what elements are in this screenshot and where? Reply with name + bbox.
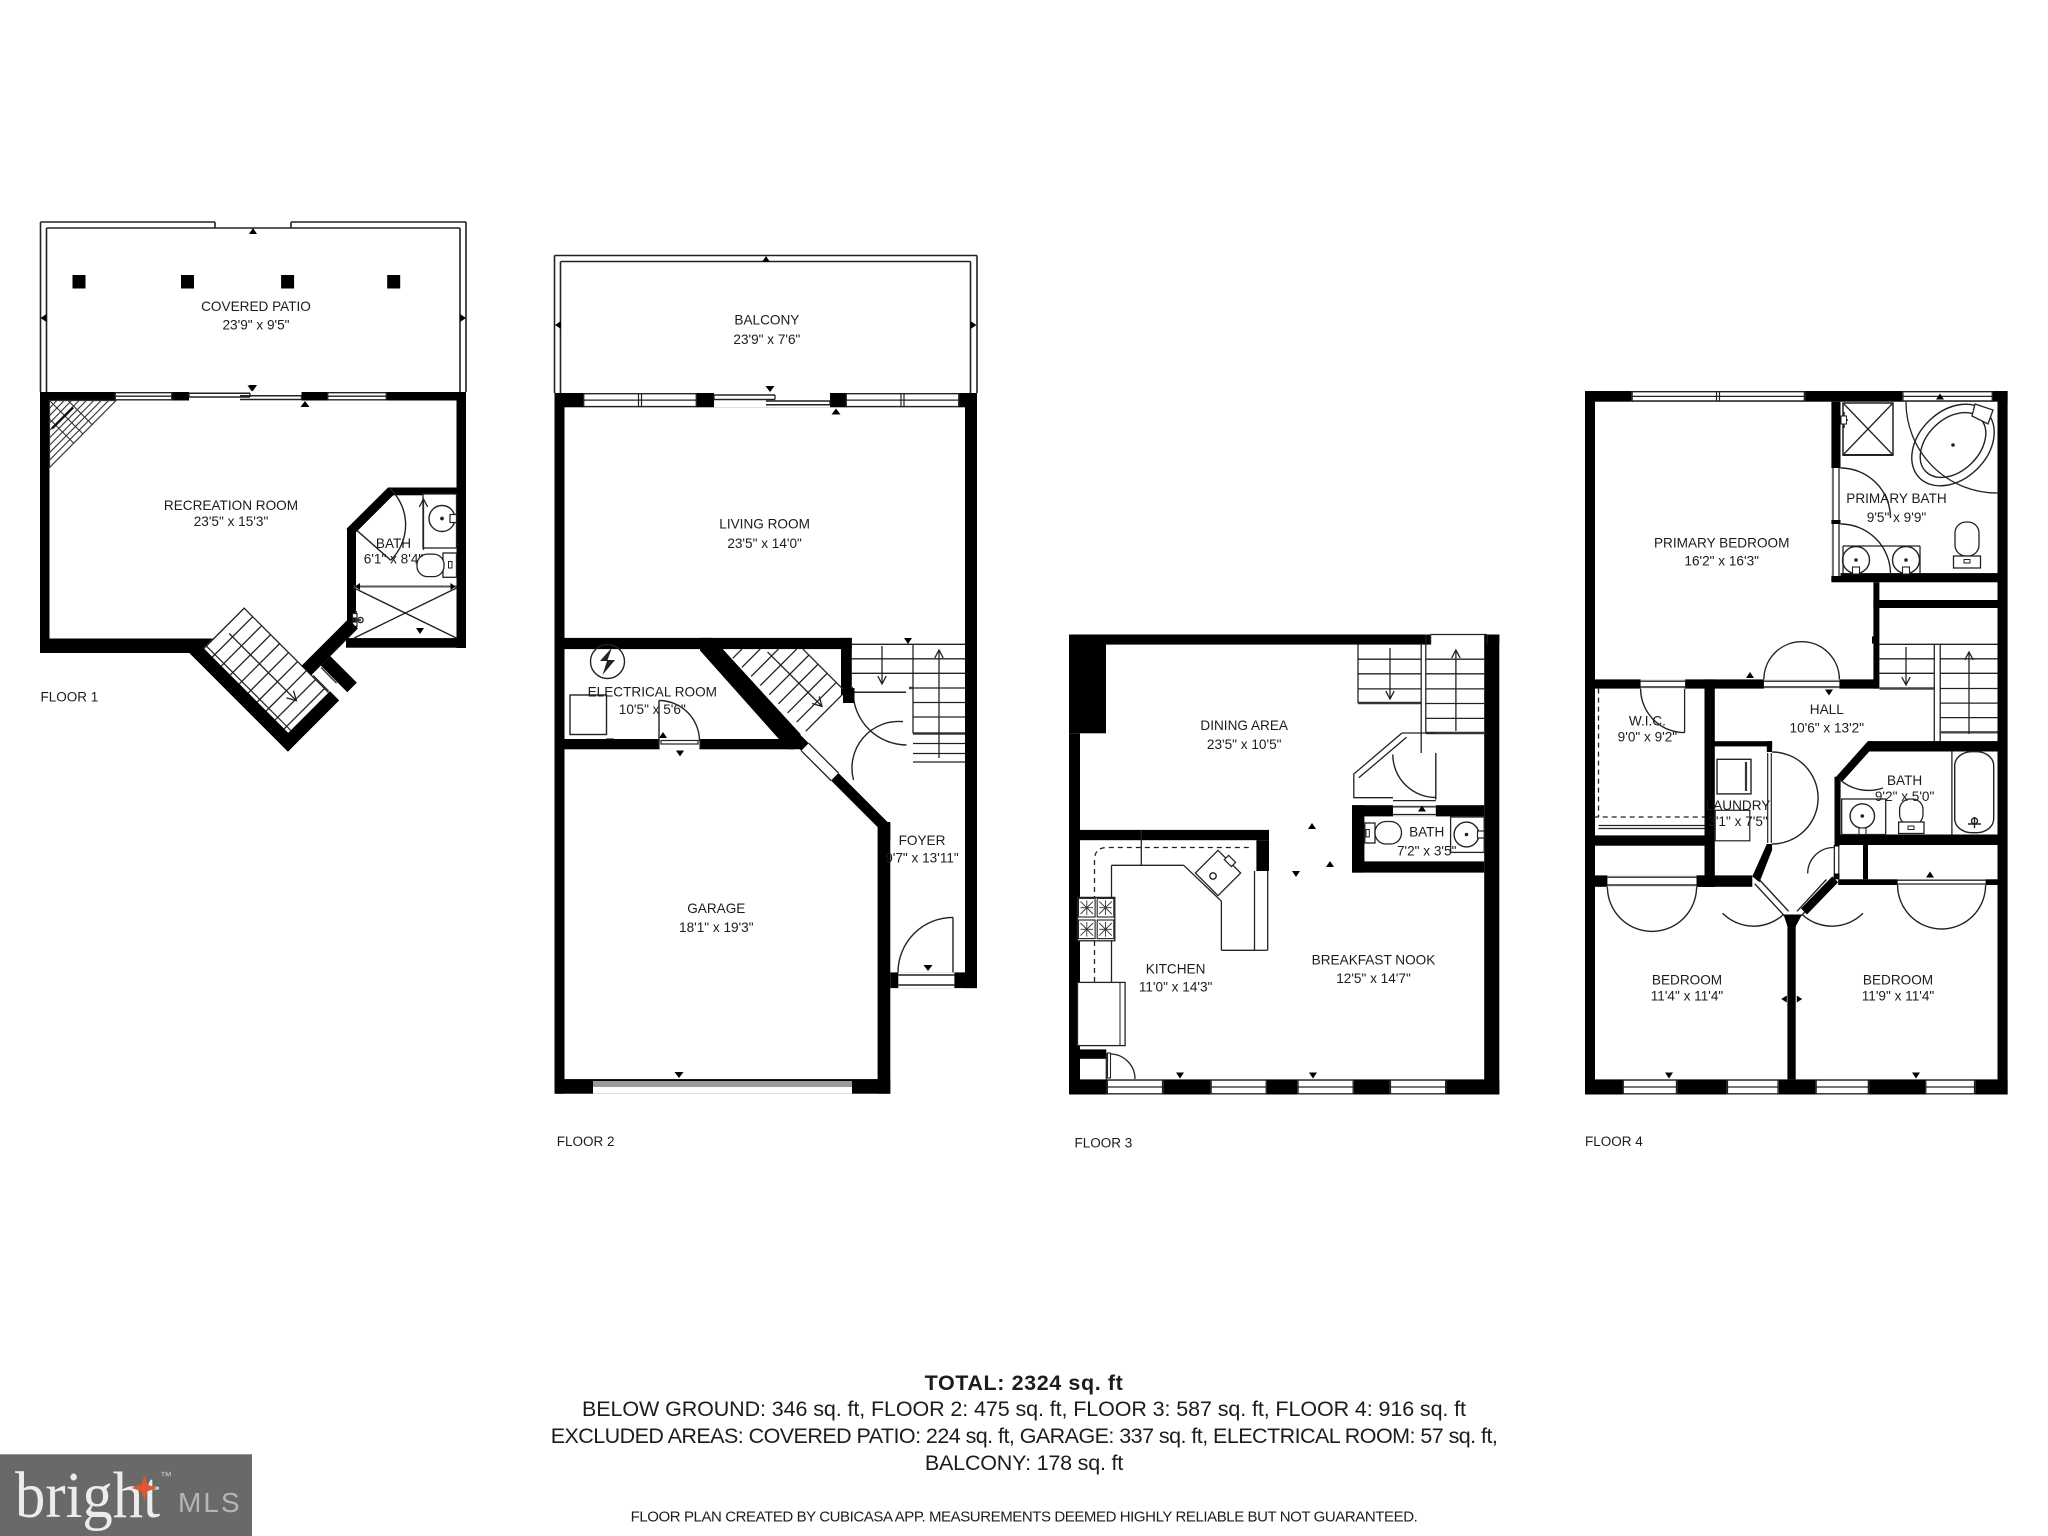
svg-text:BALCONY: 178 sq. ft: BALCONY: 178 sq. ft — [925, 1451, 1123, 1475]
svg-text:MLS: MLS — [178, 1487, 242, 1518]
svg-text:BATH: BATH — [1409, 825, 1444, 840]
svg-text:TOTAL: 2324 sq. ft: TOTAL: 2324 sq. ft — [925, 1371, 1124, 1395]
svg-text:FOYER: FOYER — [899, 833, 946, 848]
svg-text:12'5" x 14'7": 12'5" x 14'7" — [1336, 971, 1411, 986]
svg-text:6'1" x 8'4": 6'1" x 8'4" — [364, 552, 424, 567]
svg-text:COVERED PATIO: COVERED PATIO — [201, 299, 311, 314]
svg-text:BATH: BATH — [376, 536, 411, 551]
svg-text:FLOOR 2: FLOOR 2 — [557, 1134, 615, 1149]
svg-text:BEDROOM: BEDROOM — [1863, 973, 1933, 988]
svg-text:PRIMARY BEDROOM: PRIMARY BEDROOM — [1654, 536, 1789, 551]
svg-text:RECREATION ROOM: RECREATION ROOM — [164, 498, 298, 513]
svg-text:LAUNDRY: LAUNDRY — [1706, 798, 1771, 813]
svg-text:23'5" x 15'3": 23'5" x 15'3" — [194, 514, 269, 529]
svg-text:11'4" x 11'4": 11'4" x 11'4" — [1651, 989, 1724, 1004]
svg-text:BALCONY: BALCONY — [734, 313, 799, 328]
svg-text:GARAGE: GARAGE — [687, 901, 745, 916]
svg-text:9'0" x 9'2": 9'0" x 9'2" — [1618, 730, 1678, 745]
svg-text:FLOOR PLAN CREATED BY CUBICASA: FLOOR PLAN CREATED BY CUBICASA APP. MEAS… — [631, 1508, 1418, 1525]
svg-text:™: ™ — [160, 1469, 172, 1483]
svg-text:9'2" x 5'0": 9'2" x 5'0" — [1875, 789, 1935, 804]
svg-text:23'9" x 9'5": 23'9" x 9'5" — [223, 318, 290, 333]
svg-text:FLOOR 3: FLOOR 3 — [1075, 1136, 1133, 1151]
svg-text:PRIMARY BATH: PRIMARY BATH — [1846, 491, 1946, 506]
svg-text:23'5" x 14'0": 23'5" x 14'0" — [727, 536, 802, 551]
svg-text:bright: bright — [15, 1459, 160, 1532]
svg-text:11'9" x 11'4": 11'9" x 11'4" — [1862, 989, 1935, 1004]
svg-text:HALL: HALL — [1810, 702, 1844, 717]
svg-text:LIVING ROOM: LIVING ROOM — [719, 517, 810, 532]
svg-text:BATH: BATH — [1887, 773, 1922, 788]
svg-text:BELOW GROUND: 346 sq. ft, FLOO: BELOW GROUND: 346 sq. ft, FLOOR 2: 475 s… — [582, 1397, 1466, 1421]
svg-text:7'2" x 3'5": 7'2" x 3'5" — [1397, 844, 1457, 859]
svg-text:9'7" x 13'11": 9'7" x 13'11" — [885, 851, 959, 866]
svg-text:16'2" x 16'3": 16'2" x 16'3" — [1684, 554, 1759, 569]
svg-text:18'1" x 19'3": 18'1" x 19'3" — [679, 920, 754, 935]
svg-text:KITCHEN: KITCHEN — [1146, 962, 1206, 977]
svg-text:23'5" x 10'5": 23'5" x 10'5" — [1207, 737, 1282, 752]
svg-text:10'6" x 13'2": 10'6" x 13'2" — [1790, 721, 1865, 736]
svg-text:BEDROOM: BEDROOM — [1652, 973, 1722, 988]
svg-text:FLOOR 1: FLOOR 1 — [41, 690, 99, 705]
svg-text:ELECTRICAL ROOM: ELECTRICAL ROOM — [588, 685, 717, 700]
svg-text:23'9" x 7'6": 23'9" x 7'6" — [733, 332, 800, 347]
svg-text:DINING AREA: DINING AREA — [1200, 718, 1289, 733]
svg-text:3'1" x 7'5": 3'1" x 7'5" — [1708, 814, 1768, 829]
svg-text:11'0" x 14'3": 11'0" x 14'3" — [1139, 980, 1213, 995]
svg-text:W.I.C.: W.I.C. — [1629, 714, 1666, 729]
svg-text:9'5" x 9'9": 9'5" x 9'9" — [1867, 510, 1927, 525]
svg-text:FLOOR 4: FLOOR 4 — [1585, 1134, 1643, 1149]
svg-text:BREAKFAST NOOK: BREAKFAST NOOK — [1312, 953, 1436, 968]
svg-text:EXCLUDED AREAS: COVERED PATIO:: EXCLUDED AREAS: COVERED PATIO: 224 sq. f… — [551, 1424, 1498, 1448]
